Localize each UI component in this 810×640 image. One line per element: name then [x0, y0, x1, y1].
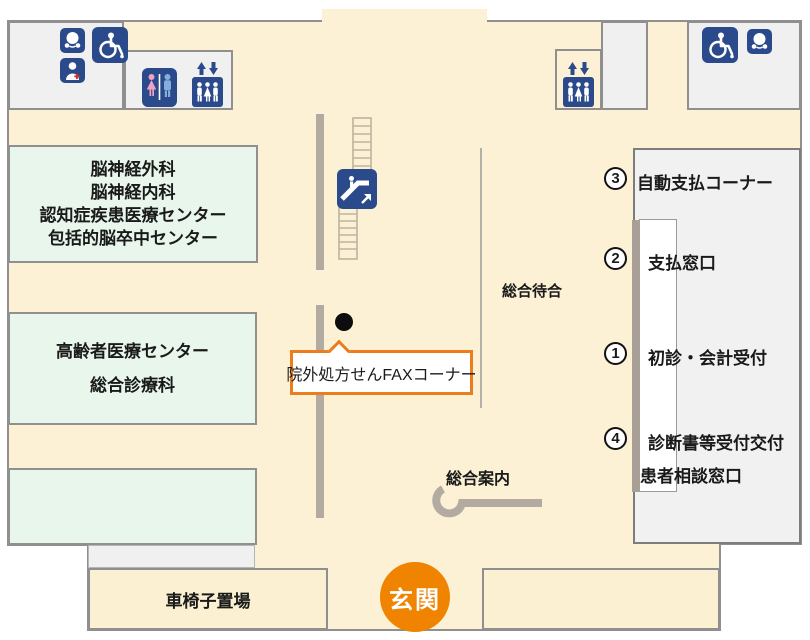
- entry-step-strip: [88, 545, 255, 568]
- wall-upper: [316, 114, 324, 270]
- number-badge-4: 4: [604, 427, 627, 450]
- reception-item-auto-pay: 自動支払コーナー: [637, 169, 773, 194]
- baby-care-icon: [747, 29, 772, 54]
- badge-number: 4: [611, 430, 619, 447]
- entrance-circle: 玄関: [380, 562, 450, 632]
- fax-corner-marker: [335, 313, 353, 331]
- fax-corner-label: 院外処方せんFAXコーナー: [286, 361, 476, 385]
- reception-item-payment-window: 支払窓口: [648, 249, 716, 274]
- elevator-icon: [563, 59, 594, 107]
- room-label: 脳神経外科: [91, 158, 176, 181]
- baby-care-icon: [60, 28, 85, 53]
- room-label: 高齢者医療センター: [56, 335, 209, 369]
- room-geriatrics: 高齢者医療センター 総合診療科: [8, 312, 257, 425]
- toilet-icon: [142, 68, 177, 107]
- corridor-opening: [322, 9, 487, 22]
- badge-number: 1: [611, 345, 619, 362]
- room-label: 脳神経内科: [91, 181, 176, 204]
- number-badge-2: 2: [604, 247, 627, 270]
- staff-icon: [60, 58, 85, 83]
- facility-box-small-right: [601, 21, 648, 110]
- room-neurology: 脳神経外科 脳神経内科 認知症疾患医療センター 包括的脳卒中センター: [8, 145, 258, 263]
- badge-number: 3: [611, 170, 619, 187]
- wheelchair-icon: [92, 27, 128, 63]
- wheelchair-storage-label: 車椅子置場: [166, 587, 251, 612]
- number-badge-3: 3: [604, 167, 627, 190]
- room-empty: [8, 468, 257, 545]
- fax-corner-callout: 院外処方せんFAXコーナー: [290, 350, 473, 395]
- entrance-label: 玄関: [389, 580, 441, 615]
- wall-lower: [316, 305, 324, 518]
- general-information-label: 総合案内: [446, 465, 510, 489]
- elevator-icon: [192, 59, 223, 107]
- wheelchair-storage-box: 車椅子置場: [88, 568, 328, 630]
- room-label: 総合診療科: [90, 369, 175, 403]
- room-label: 包括的脳卒中センター: [48, 227, 218, 250]
- bottom-right-box: [482, 568, 720, 630]
- hospital-floor-map: 脳神経外科 脳神経内科 認知症疾患医療センター 包括的脳卒中センター 高齢者医療…: [0, 0, 810, 640]
- badge-number: 2: [611, 250, 619, 267]
- wheelchair-icon: [702, 27, 738, 63]
- reception-item-patient-consult: 患者相談窓口: [640, 462, 742, 487]
- reception-item-certificates: 診断書等受付交付: [648, 429, 784, 454]
- room-label: 認知症疾患医療センター: [40, 204, 227, 227]
- number-badge-1: 1: [604, 342, 627, 365]
- escalator-icon: [337, 169, 377, 209]
- general-waiting-label: 総合待合: [502, 280, 562, 301]
- reception-item-first-visit: 初診・会計受付: [648, 344, 767, 369]
- reception-counter: [632, 220, 640, 492]
